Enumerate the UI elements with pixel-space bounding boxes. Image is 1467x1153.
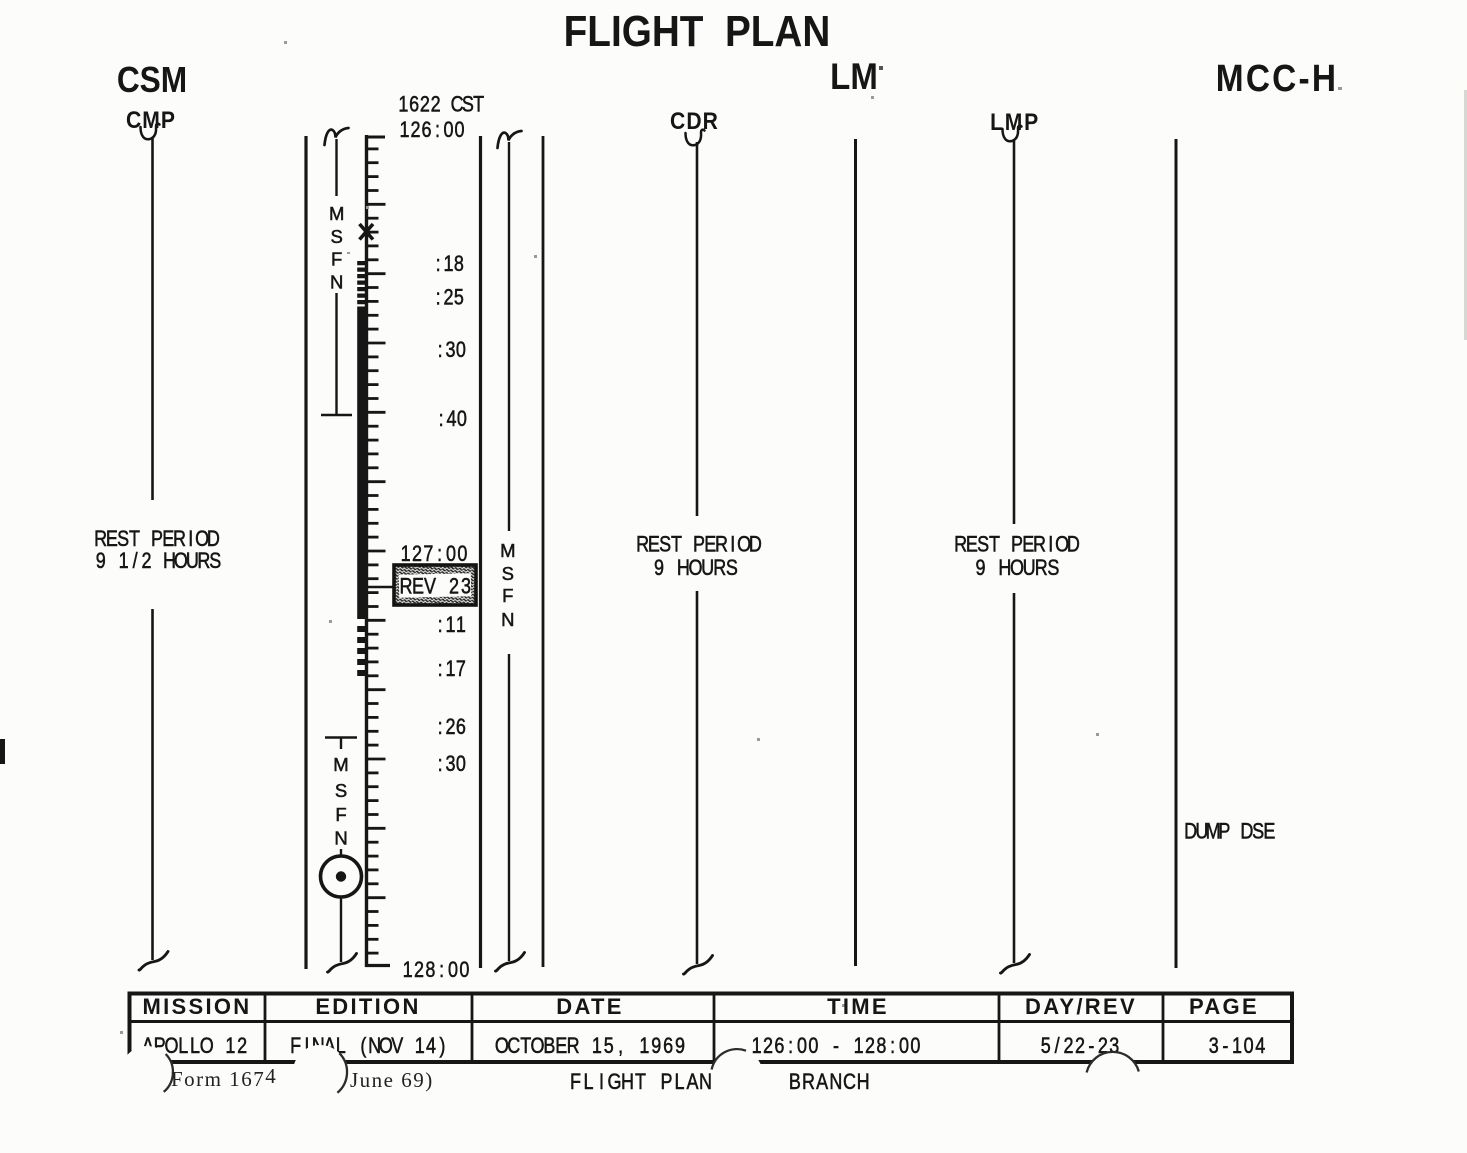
svg-text:CMP: CMP (126, 107, 176, 134)
svg-text:DUMPDSE: DUMPDSE (1184, 820, 1275, 844)
svg-text:M: M (329, 203, 344, 224)
svg-text::11: :11 (438, 613, 466, 637)
svg-text:126:00-128:00: 126:00-128:00 (752, 1034, 921, 1058)
svg-text::17: :17 (438, 657, 466, 681)
svg-text:CSM: CSM (117, 60, 187, 100)
svg-text:RESTPERIOD: RESTPERIOD (94, 527, 220, 551)
svg-text:F: F (502, 585, 513, 606)
svg-text::26: :26 (438, 715, 466, 739)
svg-text:MISSION: MISSION (143, 994, 252, 1019)
svg-text:RESTPERIOD: RESTPERIOD (954, 533, 1080, 557)
svg-text::25: :25 (436, 286, 464, 310)
svg-text:REV23: REV23 (400, 575, 471, 599)
svg-text::30: :30 (438, 752, 466, 776)
svg-text:3-104: 3-104 (1209, 1034, 1265, 1058)
svg-text:S: S (502, 563, 514, 584)
svg-text:FLIGHTPLAN: FLIGHTPLAN (570, 1070, 712, 1094)
svg-text:MCC-H: MCC-H (1216, 57, 1338, 99)
svg-text:N: N (330, 272, 343, 293)
svg-text:RESTPERIOD: RESTPERIOD (636, 533, 762, 557)
svg-text:LM: LM (830, 56, 878, 97)
svg-text::18: :18 (436, 252, 464, 276)
svg-text::30: :30 (438, 338, 466, 362)
svg-text:S: S (335, 780, 347, 801)
svg-text:F: F (335, 804, 346, 825)
svg-text:EDITION: EDITION (315, 994, 420, 1019)
svg-text:F: F (331, 249, 342, 270)
svg-text:Form 1674: Form 1674 (171, 1064, 277, 1091)
svg-text:DAY/REV: DAY/REV (1025, 994, 1137, 1019)
svg-text:N: N (501, 609, 514, 630)
svg-text:June 69): June 69) (350, 1068, 434, 1092)
svg-text:CDR: CDR (670, 108, 719, 135)
svg-text:LMP: LMP (990, 109, 1040, 136)
svg-text::40: :40 (439, 407, 467, 431)
svg-text:M: M (500, 540, 515, 561)
svg-text:S: S (331, 226, 343, 247)
svg-text:FLIGHT PLAN: FLIGHT PLAN (564, 6, 831, 56)
svg-text:PAGE: PAGE (1189, 994, 1259, 1019)
svg-text:DATE: DATE (556, 994, 623, 1019)
svg-text:TIME: TIME (827, 994, 889, 1019)
svg-text:N: N (334, 828, 347, 849)
svg-text:M: M (333, 754, 348, 775)
